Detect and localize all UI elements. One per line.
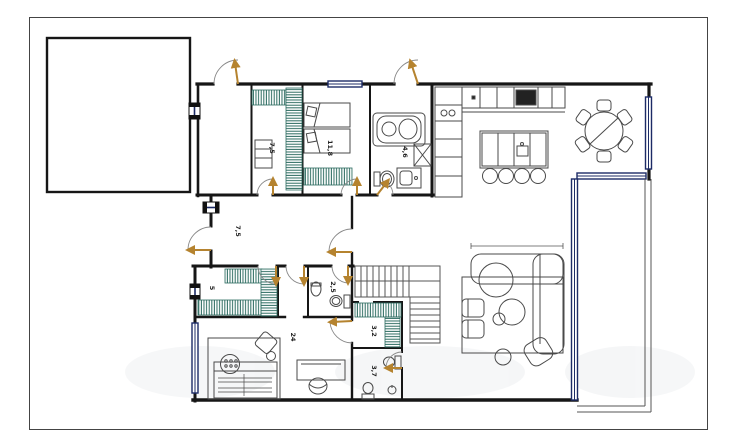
small-window-wardrobe-room [190, 284, 200, 299]
label-hallway: 7,5 [234, 225, 242, 237]
dining-table [574, 100, 634, 162]
label-wc: 3,7 [370, 365, 378, 377]
small-window-hall [203, 202, 219, 213]
armchair-2 [462, 320, 484, 338]
rug [462, 277, 563, 353]
door-corridor-living [329, 229, 352, 252]
label-bathroom-small: 2,5 [329, 281, 337, 293]
sink-small-bath [311, 282, 321, 296]
door-exterior-1 [214, 60, 238, 84]
label-bedroom-twin: 11,8 [326, 140, 334, 157]
sofa-right [533, 254, 564, 354]
vanity-main [397, 168, 421, 188]
label-closet: 3,2 [370, 325, 378, 337]
label-bedroom-large: 24 [289, 332, 297, 342]
shower [414, 144, 431, 166]
door-entrance [188, 227, 211, 250]
door-exterior-2 [394, 60, 418, 84]
lounge-chair [521, 335, 555, 369]
coffee-table [499, 299, 525, 325]
armchair-1 [462, 299, 484, 317]
annex-room [47, 38, 190, 192]
label-dressing-room: 7,5 [268, 142, 276, 154]
kitchen-tall-units [435, 87, 462, 197]
small-window-annex [189, 103, 200, 119]
dimension-line [471, 243, 563, 249]
floor-plan-drawing: 7,5 11,8 4,6 7,5 5 2,5 24 3,2 3,7 [0, 0, 740, 444]
label-bathroom-main: 4,6 [401, 146, 409, 158]
toilet-small-bath [330, 295, 350, 308]
bathtub [373, 113, 425, 146]
door-bedroom-large [330, 321, 352, 343]
floor-plant [479, 263, 513, 297]
door-hall [286, 266, 304, 284]
label-wardrobe-room: 5 [208, 286, 216, 291]
door-dressing [257, 179, 273, 195]
kitchen-island [480, 131, 548, 184]
floor-plan-canvas: 7,5 11,8 4,6 7,5 5 2,5 24 3,2 3,7 [0, 0, 740, 444]
watermark [125, 346, 695, 398]
sofa-top [471, 254, 563, 284]
bed-1 [304, 103, 350, 127]
door-bathroom-main [377, 182, 393, 195]
kitchen-wall-cabinets [462, 87, 565, 112]
